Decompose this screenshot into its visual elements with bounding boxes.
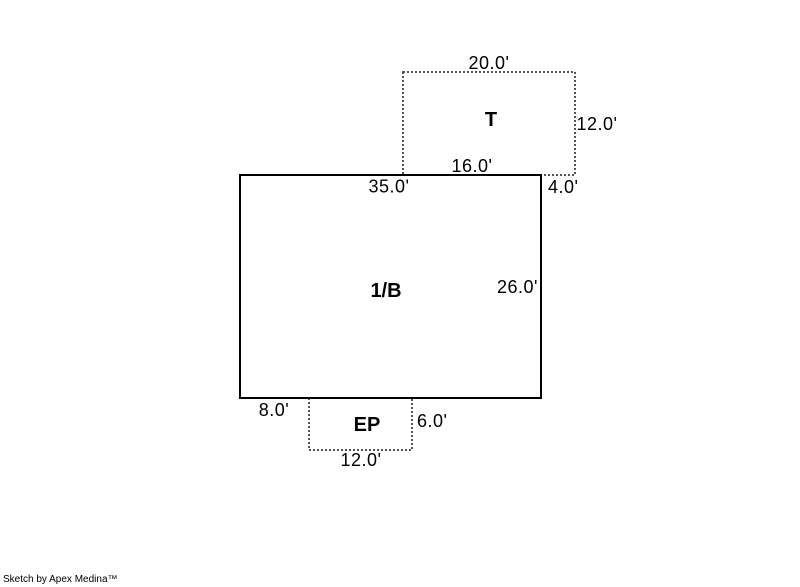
svg-text:16.0': 16.0': [452, 156, 493, 176]
svg-text:8.0': 8.0': [259, 400, 289, 420]
svg-text:Sketch by Apex Medina™: Sketch by Apex Medina™: [3, 574, 118, 585]
svg-text:12.0': 12.0': [577, 114, 618, 134]
svg-text:1/B: 1/B: [370, 280, 401, 302]
svg-text:20.0': 20.0': [469, 53, 510, 73]
svg-text:T: T: [485, 109, 497, 131]
svg-text:12.0': 12.0': [341, 450, 382, 470]
svg-text:6.0': 6.0': [417, 411, 447, 431]
svg-text:26.0': 26.0': [497, 277, 538, 297]
svg-text:35.0': 35.0': [369, 177, 410, 197]
svg-text:4.0': 4.0': [548, 177, 578, 197]
svg-text:EP: EP: [354, 414, 381, 436]
